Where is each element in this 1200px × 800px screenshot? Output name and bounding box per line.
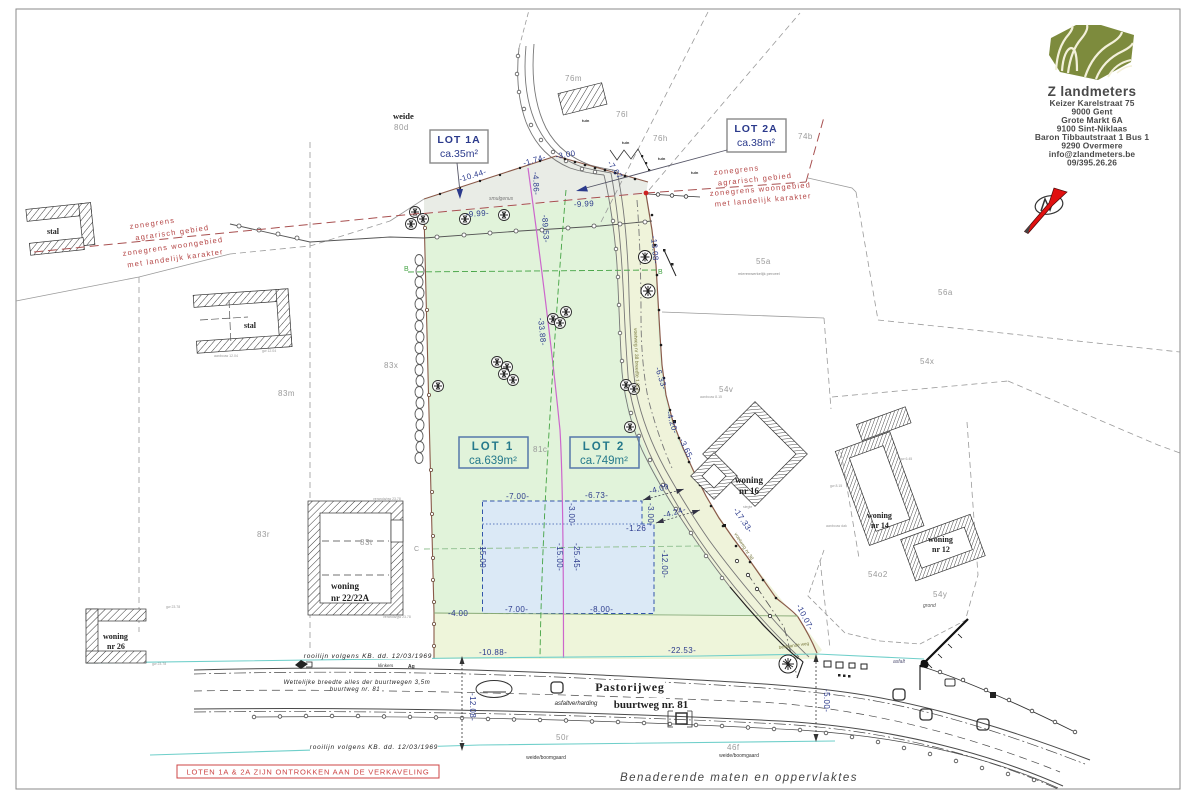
svg-text:buurtweg nr. 81: buurtweg nr. 81 — [330, 687, 380, 693]
svg-text:tuin: tuin — [622, 140, 630, 145]
svg-text:weide/boomgaard: weide/boomgaard — [719, 753, 759, 759]
svg-text:tuin: tuin — [582, 118, 590, 123]
svg-text:buurtweg nr. 81: buurtweg nr. 81 — [614, 699, 688, 711]
svg-text:76m: 76m — [565, 74, 582, 83]
svg-text:ca.38m²: ca.38m² — [737, 137, 775, 149]
svg-text:-9.99-: -9.99- — [466, 208, 490, 219]
svg-text:ca.749m²: ca.749m² — [580, 455, 628, 467]
svg-text:-10.88-: -10.88- — [479, 648, 507, 657]
svg-text:nr 16: nr 16 — [739, 486, 760, 496]
svg-text:-8.00-: -8.00- — [590, 605, 613, 614]
svg-text:gw 23.78: gw 23.78 — [166, 605, 180, 609]
svg-text:-4.00: -4.00 — [448, 609, 468, 618]
svg-text:54y: 54y — [933, 590, 947, 599]
svg-text:Z landmeters: Z landmeters — [1048, 84, 1137, 99]
svg-text:siegte: siegte — [743, 505, 752, 509]
svg-text:46f: 46f — [727, 743, 740, 752]
svg-text:-7.00-: -7.00- — [505, 605, 528, 614]
svg-text:-1.26: -1.26 — [626, 524, 646, 533]
svg-text:ca.639m²: ca.639m² — [469, 455, 517, 467]
svg-text:gw 12.04: gw 12.04 — [262, 349, 276, 353]
svg-text:-12.08-: -12.08- — [468, 693, 477, 721]
svg-text:woning: woning — [928, 535, 953, 544]
svg-text:09/395.26.26: 09/395.26.26 — [1067, 158, 1117, 168]
svg-text:83r: 83r — [257, 530, 270, 539]
svg-text:aanbouw dak: aanbouw dak — [826, 524, 847, 528]
svg-text:-5.00-: -5.00- — [822, 689, 831, 712]
svg-text:gw 23.78: gw 23.78 — [152, 662, 166, 666]
svg-text:54x: 54x — [920, 357, 934, 366]
svg-text:Benaderende maten en opperv: Benaderende maten en oppervlaktes — [620, 772, 858, 784]
svg-text:nr 26: nr 26 — [107, 642, 125, 651]
svg-text:74b: 74b — [798, 132, 813, 141]
svg-text:-22.53-: -22.53- — [668, 646, 696, 655]
svg-text:-4.86-: -4.86- — [531, 172, 541, 196]
svg-text:81c: 81c — [533, 445, 547, 454]
svg-text:-3.00-: -3.00- — [646, 503, 655, 526]
svg-text:rooilijn volgens KB. dd. 1: rooilijn volgens KB. dd. 12/03/1969 — [304, 653, 432, 660]
svg-text:-12.00-: -12.00- — [660, 550, 669, 578]
svg-text:-25.45-: -25.45- — [572, 543, 581, 571]
svg-text:LOT 1A: LOT 1A — [437, 134, 480, 146]
svg-text:stal: stal — [47, 227, 60, 236]
svg-text:gw 6.45: gw 6.45 — [900, 457, 912, 461]
svg-text:woning: woning — [867, 511, 892, 520]
svg-text:-6.73-: -6.73- — [585, 491, 608, 500]
svg-text:-9.99: -9.99 — [574, 199, 595, 209]
svg-text:Wettelijke breedte alles de: Wettelijke breedte alles der buurtwegen … — [284, 680, 431, 686]
svg-text:-3.00-: -3.00- — [567, 503, 576, 526]
svg-text:54v: 54v — [719, 385, 733, 394]
svg-text:-15.00-: -15.00- — [555, 543, 564, 571]
svg-text:weide: weide — [393, 111, 414, 121]
svg-text:nr 14: nr 14 — [871, 521, 889, 530]
svg-text:B: B — [658, 269, 663, 276]
svg-text:83m: 83m — [278, 389, 295, 398]
svg-text:woning: woning — [103, 632, 128, 641]
svg-text:-7.00-: -7.00- — [506, 492, 529, 501]
svg-text:asfaltverharding: asfaltverharding — [555, 701, 598, 707]
svg-text:rooilijn volgens KB. dd. 1: rooilijn volgens KB. dd. 12/03/1969 — [310, 744, 438, 751]
svg-text:83t: 83t — [360, 538, 373, 547]
svg-text:veranda/gw 23.78: veranda/gw 23.78 — [383, 615, 411, 619]
svg-text:aanbouw 12.04: aanbouw 12.04 — [214, 354, 238, 358]
svg-text:LOTEN 1A & 2A ZIJN ONTROKKEN A: LOTEN 1A & 2A ZIJN ONTROKKEN AAN DE VERK… — [187, 768, 430, 777]
svg-text:veranda/gw 23.78: veranda/gw 23.78 — [373, 497, 401, 501]
svg-text:76l: 76l — [616, 110, 628, 119]
svg-text:83x: 83x — [384, 361, 398, 370]
svg-text:54o2: 54o2 — [868, 570, 888, 579]
svg-text:B: B — [404, 266, 409, 273]
svg-text:gw 8.15: gw 8.15 — [830, 484, 842, 488]
svg-text:ca.35m²: ca.35m² — [440, 148, 478, 160]
svg-text:tuin: tuin — [691, 170, 699, 175]
svg-text:LOT 2A: LOT 2A — [734, 123, 777, 135]
svg-text:tuin: tuin — [658, 156, 666, 161]
svg-text:80d: 80d — [394, 123, 409, 132]
svg-text:stal: stal — [244, 321, 257, 330]
svg-text:mierenwerkelijk perceel: mierenwerkelijk perceel — [738, 271, 780, 276]
svg-text:56a: 56a — [938, 288, 953, 297]
svg-text:LOT 2: LOT 2 — [583, 441, 626, 453]
svg-text:50r: 50r — [556, 733, 569, 742]
svg-text:55a: 55a — [756, 257, 771, 266]
svg-text:smulgenus: smulgenus — [489, 196, 514, 202]
svg-text:woning: woning — [735, 475, 764, 485]
svg-text:grond: grond — [923, 603, 936, 609]
svg-text:woning: woning — [331, 581, 360, 591]
svg-text:aanbouw 8.15: aanbouw 8.15 — [700, 395, 722, 399]
svg-text:weide/boomgaard: weide/boomgaard — [526, 755, 566, 761]
svg-text:76h: 76h — [653, 134, 668, 143]
svg-text:Ag: Ag — [408, 664, 415, 670]
svg-text:Pastorijweg: Pastorijweg — [595, 680, 664, 694]
svg-text:klinkers: klinkers — [378, 663, 394, 668]
svg-text:C: C — [414, 546, 419, 553]
svg-text:nr 12: nr 12 — [932, 545, 950, 554]
svg-text:LOT 1: LOT 1 — [472, 441, 515, 453]
svg-text:nr 22/22A: nr 22/22A — [331, 593, 370, 603]
svg-text:asfalt: asfalt — [893, 659, 906, 665]
svg-text:-15.00-: -15.00- — [478, 543, 487, 571]
